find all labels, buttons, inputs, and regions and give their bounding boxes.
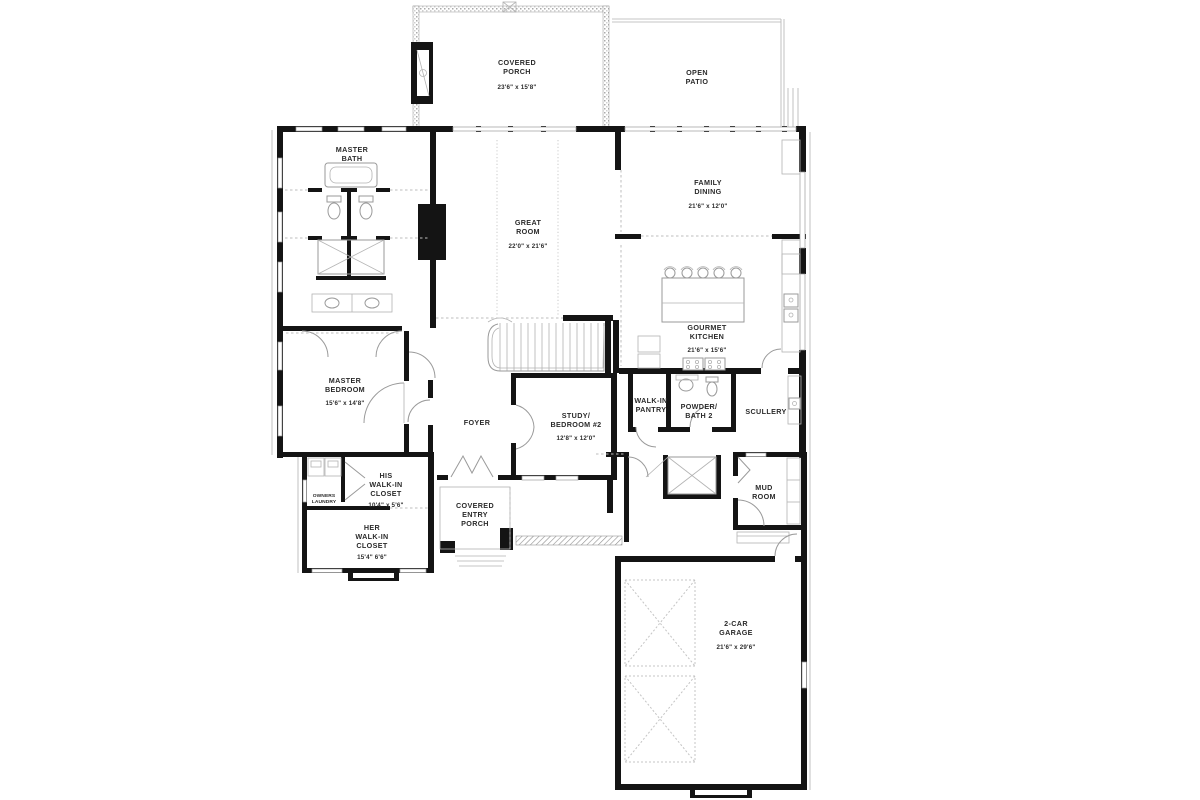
room-name: OPEN	[686, 68, 708, 77]
label-study-bedroom2: STUDY/ BEDROOM #2 12'8" x 12'0"	[550, 411, 601, 442]
label-walk-in-pantry: WALK-IN PANTRY	[634, 396, 667, 414]
label-covered-entry-porch: COVERED ENTRY PORCH	[456, 501, 494, 528]
room-name: ENTRY	[462, 510, 488, 519]
room-name: GREAT	[515, 218, 542, 227]
label-owners-laundry: OWNERS LAUNDRY	[312, 493, 337, 505]
label-scullery: SCULLERY	[745, 407, 786, 416]
label-master-bedroom: MASTER BEDROOM 15'6" x 14'8"	[325, 376, 365, 407]
great-room-fireplace	[418, 204, 446, 260]
wall-oven	[782, 254, 800, 274]
room-name: BEDROOM	[325, 385, 365, 394]
label-master-bath: MASTER BATH	[336, 145, 369, 163]
room-name: CLOSET	[356, 541, 388, 550]
kitchen-island	[662, 267, 744, 322]
walls	[277, 126, 807, 798]
windows	[278, 127, 807, 688]
room-name: BATH	[342, 154, 363, 163]
cabinet	[782, 140, 800, 174]
room-name: KITCHEN	[690, 332, 724, 341]
room-name: MUD	[755, 483, 772, 492]
basement-stair	[646, 457, 716, 494]
room-name: LAUNDRY	[312, 499, 337, 505]
room-name: PORCH	[461, 519, 489, 528]
room-name: BEDROOM #2	[550, 420, 601, 429]
label-covered-porch: COVERED PORCH 23'6" x 15'8"	[498, 58, 537, 91]
room-dim: 21'6" x 15'6"	[688, 347, 727, 354]
label-garage: 2-CAR GARAGE 21'6" x 29'6"	[717, 619, 756, 651]
room-name: GOURMET	[687, 323, 726, 332]
room-dim: 10'4" x 5'6"	[368, 502, 403, 509]
main-staircase	[488, 318, 604, 371]
label-gourmet-kitchen: GOURMET KITCHEN 21'6" x 15'6"	[687, 323, 726, 354]
room-name: WALK-IN	[634, 396, 667, 405]
toilet	[707, 382, 717, 396]
room-name: DINING	[694, 187, 721, 196]
pedestal-sink	[679, 379, 693, 391]
room-name: STUDY/	[562, 411, 590, 420]
room-name: HIS	[379, 471, 392, 480]
floor-plan-drawing: COVERED PORCH 23'6" x 15'8" OPEN PATIO M…	[0, 0, 1200, 800]
bar-stools	[664, 267, 742, 278]
lockers	[787, 458, 800, 524]
label-foyer: FOYER	[464, 418, 491, 427]
room-name: PORCH	[503, 67, 531, 76]
prep-sinks	[784, 294, 798, 322]
room-dim: 22'0" x 21'6"	[509, 243, 548, 250]
overhang-lines	[272, 130, 810, 790]
room-name: MASTER	[336, 145, 369, 154]
room-dim: 23'6" x 15'8"	[498, 84, 537, 91]
room-name: ROOM	[752, 492, 776, 501]
room-name: FAMILY	[694, 178, 722, 187]
room-name: CLOSET	[370, 489, 402, 498]
room-name: COVERED	[498, 58, 536, 67]
room-name: PATIO	[686, 77, 709, 86]
room-dim: 15'6" x 14'8"	[326, 400, 365, 407]
walkway	[516, 536, 622, 545]
toilet	[327, 196, 341, 219]
label-open-patio: OPEN PATIO	[686, 68, 709, 86]
garage-bays	[625, 580, 695, 762]
laundry-appliances	[308, 458, 341, 476]
room-name: 2-CAR	[724, 619, 748, 628]
label-powder-bath2: POWDER/ BATH 2	[681, 402, 718, 420]
room-dim: 21'6" x 12'0"	[689, 203, 728, 210]
double-vanity	[312, 294, 392, 312]
dashed-lines	[285, 140, 772, 549]
room-dim: 15'4" 6'6"	[357, 554, 387, 561]
label-mud-room: MUD ROOM	[752, 483, 776, 501]
label-great-room: GREAT ROOM 22'0" x 21'6"	[509, 218, 548, 250]
toilet	[359, 196, 373, 219]
label-his-closet: HIS WALK-IN CLOSET 10'4" x 5'6"	[368, 471, 403, 509]
label-her-closet: HER WALK-IN CLOSET 15'4" 6'6"	[355, 523, 388, 561]
room-name: BATH 2	[685, 411, 713, 420]
room-name: GARAGE	[719, 628, 753, 637]
room-name: COVERED	[456, 501, 494, 510]
room-name: WALK-IN	[369, 480, 402, 489]
room-dim: 21'6" x 29'6"	[717, 644, 756, 651]
room-name: WALK-IN	[355, 532, 388, 541]
refrigerator	[638, 336, 660, 352]
room-dim: 12'8" x 12'0"	[557, 435, 596, 442]
front-door	[451, 456, 493, 477]
room-name: MASTER	[329, 376, 362, 385]
floor-plan-canvas: COVERED PORCH 23'6" x 15'8" OPEN PATIO M…	[0, 0, 1200, 800]
room-name: ROOM	[516, 227, 540, 236]
room-name: OWNERS	[313, 493, 336, 499]
room-name: SCULLERY	[745, 407, 786, 416]
room-name: POWDER/	[681, 402, 718, 411]
room-name: PANTRY	[636, 405, 667, 414]
label-family-dining: FAMILY DINING 21'6" x 12'0"	[689, 178, 728, 210]
room-name: FOYER	[464, 418, 491, 427]
room-name: HER	[364, 523, 381, 532]
